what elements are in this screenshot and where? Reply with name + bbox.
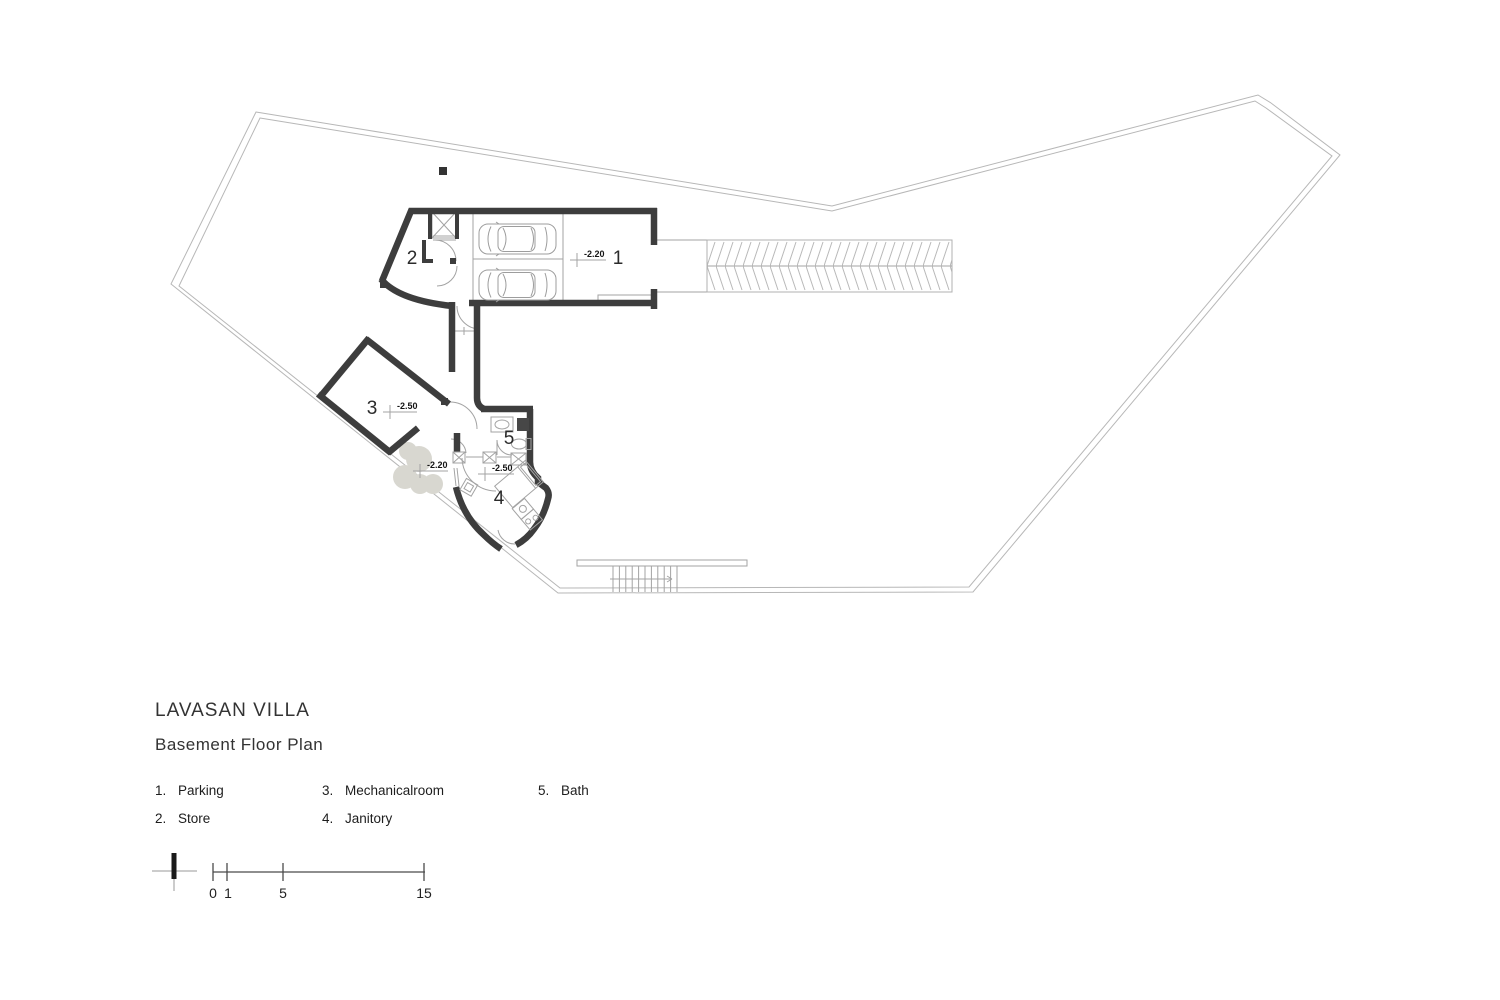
svg-text:-2.50: -2.50: [397, 401, 418, 411]
elevator-shaft: [432, 212, 456, 240]
floor-plan-page: 1 2 3 4 5 -2.20 -2.50 -2.20 -2.50: [0, 0, 1500, 1000]
page-title: LAVASAN VILLA: [155, 700, 323, 722]
legend-item-mechanicalroom: 3.Mechanicalroom: [322, 783, 444, 798]
svg-text:-2.50: -2.50: [492, 463, 513, 473]
north-arrow-icon: [152, 853, 197, 891]
level-marker-parking: -2.20: [570, 249, 606, 267]
room-label-janitory: 4: [494, 488, 505, 509]
room-label-bath: 5: [504, 428, 515, 449]
site-boundary: [171, 95, 1340, 593]
scale-tick-15: 15: [416, 885, 432, 901]
scale-tick-1: 1: [224, 885, 232, 901]
title-block: LAVASAN VILLA Basement Floor Plan: [155, 700, 323, 755]
boundary-marker-icon: [439, 167, 447, 175]
page-subtitle: Basement Floor Plan: [155, 735, 323, 755]
chair-icon: [460, 478, 478, 496]
legend-item-store: 2.Store: [155, 811, 210, 826]
room-label-store: 2: [407, 248, 418, 269]
legend-item-janitory: 4.Janitory: [322, 811, 392, 826]
scale-tick-5: 5: [279, 885, 287, 901]
level-marker-janitory: -2.50: [478, 463, 514, 481]
level-marker-mechanical: -2.50: [383, 401, 418, 419]
parking-stalls: [473, 212, 653, 301]
level-markers: -2.20 -2.50 -2.20 -2.50: [383, 249, 606, 481]
car-icon: [479, 222, 556, 302]
columns: [453, 452, 526, 465]
legend-item-bath: 5.Bath: [538, 783, 589, 798]
floor-plan-canvas: 1 2 3 4 5 -2.20 -2.50 -2.20 -2.50: [0, 0, 1500, 1000]
scale-bar: 0 1 5 15: [209, 863, 432, 901]
legend-item-parking: 1.Parking: [155, 783, 224, 798]
svg-text:-2.20: -2.20: [584, 249, 605, 259]
duct-icon: [517, 418, 529, 431]
svg-text:-2.20: -2.20: [427, 460, 448, 470]
scale-tick-0: 0: [209, 885, 217, 901]
room-label-mechanical: 3: [367, 398, 378, 419]
room-label-parking: 1: [613, 248, 624, 269]
ramp-hatch: [655, 240, 952, 292]
